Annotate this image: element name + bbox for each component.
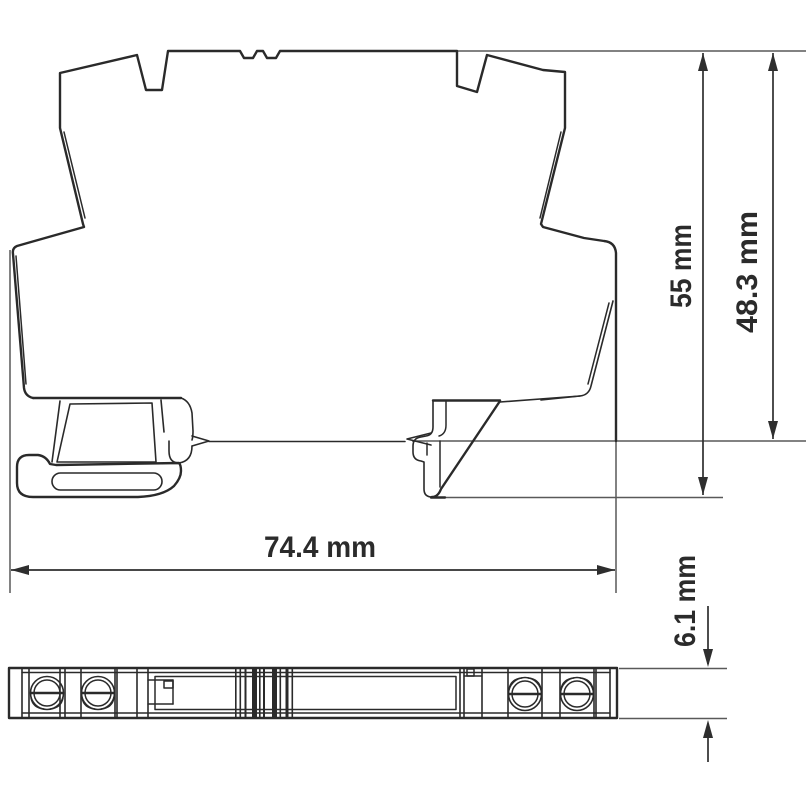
foot-diagonal-edge <box>432 401 500 497</box>
strip-latch-detail <box>148 680 173 704</box>
arrow-up-icon <box>768 53 778 71</box>
dimension-label-overall-height: 55 mm <box>665 224 698 308</box>
din-rail-foot-right <box>407 401 500 498</box>
dimension-height-above-rail: 48.3 mm <box>731 53 778 439</box>
arrow-down-icon <box>768 421 778 439</box>
right-taper-inner-line <box>540 132 561 218</box>
foot-channel-inner-a <box>439 401 446 436</box>
left-taper-inner-line <box>64 132 85 218</box>
label-field <box>155 677 456 710</box>
dimension-label-height-above-rail: 48.3 mm <box>731 211 764 333</box>
arrow-left-icon <box>11 565 29 575</box>
arrow-right-icon <box>597 565 615 575</box>
arrow-up-icon <box>703 720 713 738</box>
right-recess-edge <box>541 301 613 400</box>
dimension-overall-height: 55 mm <box>665 53 708 495</box>
arrow-down-icon <box>698 477 708 495</box>
clamp-right-leg <box>161 400 164 432</box>
clamp-hook-curl <box>169 441 192 463</box>
housing-outline <box>13 51 616 441</box>
dimension-overall-width: 74.4 mm <box>11 531 615 575</box>
clamp-hook-outer <box>181 398 193 440</box>
foot-hook-profile <box>413 401 433 497</box>
dimensional-drawing-page: 74.4 mm 55 mm 48.3 mm 6.1 mm <box>0 0 810 810</box>
arrow-down-icon <box>703 649 713 667</box>
screw-terminal-4 <box>560 669 594 717</box>
clamp-foot-slot <box>52 473 162 490</box>
dimension-label-module-thickness: 6.1 mm <box>669 555 702 647</box>
clamp-recess <box>57 403 156 462</box>
dimension-module-thickness: 6.1 mm <box>669 555 713 762</box>
side-view <box>13 51 616 498</box>
right-recess-bottom-line <box>500 396 580 402</box>
right-recess-inner-line <box>588 303 609 384</box>
clamp-tip <box>192 436 209 446</box>
bottom-view <box>9 668 617 718</box>
dimension-label-overall-width: 74.4 mm <box>264 531 376 564</box>
din-rail-clamp-left <box>17 398 209 497</box>
screw-terminal-2 <box>81 669 115 717</box>
screw-terminal-3 <box>508 669 542 717</box>
technical-drawing: 74.4 mm 55 mm 48.3 mm 6.1 mm <box>0 0 810 810</box>
arrow-up-icon <box>698 53 708 71</box>
